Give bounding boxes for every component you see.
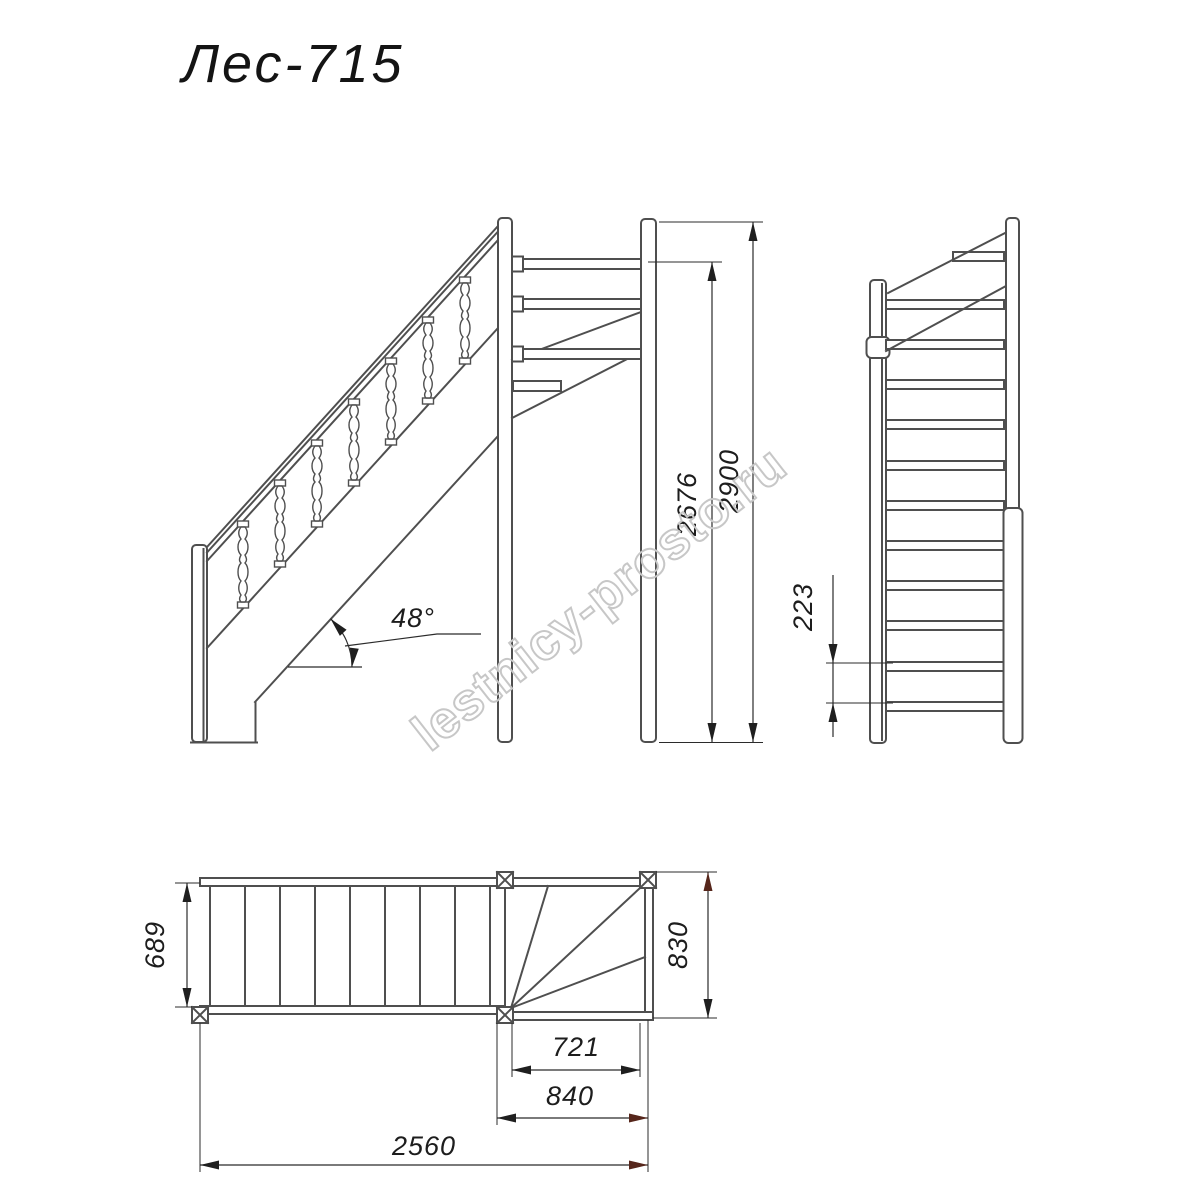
front-newel-post — [192, 545, 207, 742]
front-right-post — [641, 219, 656, 742]
dim-label-689: 689 — [140, 921, 170, 969]
side-view-drawing: 223 — [788, 218, 1023, 743]
plan-right-stringer — [645, 886, 653, 1020]
dim-label-840: 840 — [546, 1081, 594, 1111]
plan-winder-treads — [505, 886, 645, 1008]
front-handrail — [207, 226, 498, 561]
plan-winder-bottom-edge — [505, 1012, 653, 1020]
plan-top-stringer — [200, 878, 653, 886]
stair-drawing-canvas: Лес-715 — [0, 0, 1200, 1200]
plan-dim-689: 689 — [140, 883, 200, 1007]
site-watermark: lestnicy-prosto.ru — [402, 435, 798, 762]
drawing-page: Лес-715 — [0, 0, 1200, 1200]
side-treads — [886, 300, 1004, 711]
front-winder-tread — [513, 381, 561, 391]
plan-view-drawing: 689 830 721 840 — [140, 872, 717, 1172]
front-landing-rails — [512, 257, 641, 362]
dim-label-2560: 2560 — [391, 1131, 456, 1161]
plan-flight-treads — [210, 886, 490, 1006]
plan-dim-830: 830 — [653, 872, 717, 1018]
plan-dim-721: 721 — [512, 1023, 640, 1077]
front-balusters — [238, 277, 471, 608]
dim-label-830: 830 — [663, 921, 693, 969]
drawing-title: Лес-715 — [179, 34, 405, 94]
plan-bottom-stringer — [200, 1006, 505, 1014]
angle-label: 48° — [391, 603, 435, 633]
dim-label-223: 223 — [788, 583, 818, 632]
plan-posts — [192, 872, 656, 1023]
side-right-post-lower — [1004, 508, 1023, 743]
dim-label-721: 721 — [552, 1032, 600, 1062]
side-right-post-upper — [1006, 218, 1019, 513]
